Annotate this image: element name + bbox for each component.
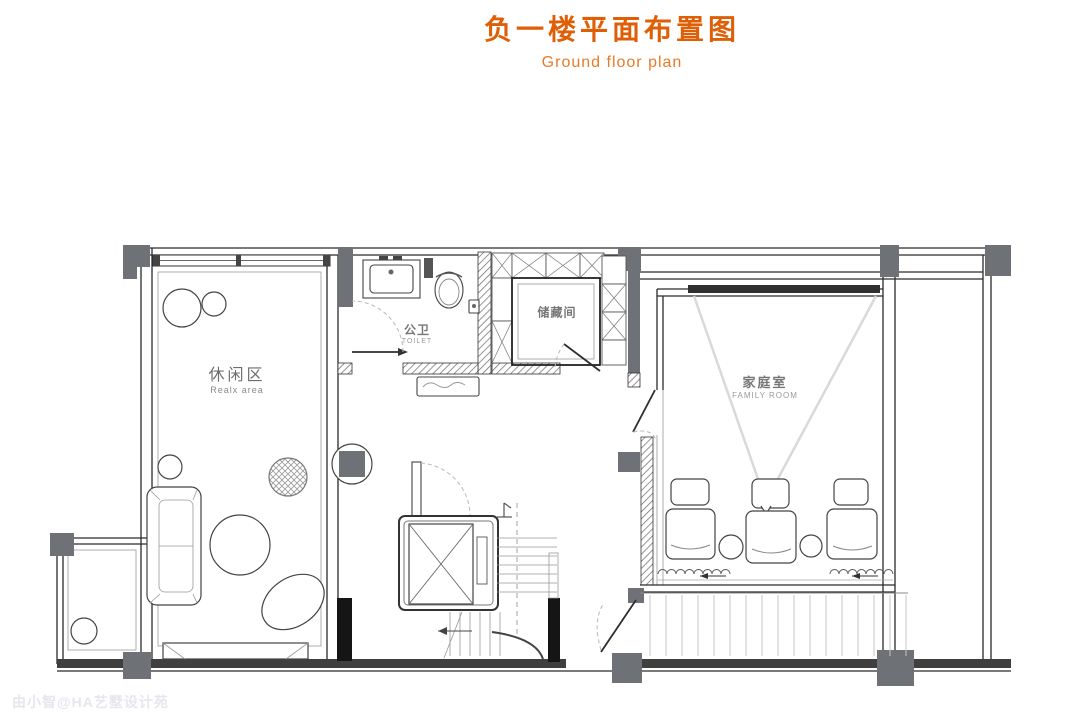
tp-holder (469, 300, 479, 313)
cabinet-column-right (602, 256, 626, 365)
bath-bench (417, 377, 479, 396)
side-table (719, 535, 743, 559)
ottoman (671, 479, 709, 505)
storage-room-outline (512, 278, 600, 365)
projection-screen (688, 285, 880, 293)
bathroom-door (352, 301, 408, 356)
patio-pot (71, 618, 97, 644)
cabinet-column-left (492, 278, 512, 363)
round-rug (269, 458, 307, 496)
family-room-door (633, 390, 656, 440)
label-family-room: 家庭室 FAMILY ROOM (732, 372, 798, 400)
sofa (147, 487, 201, 605)
wall-stub (424, 258, 433, 278)
cabinet-row-top (492, 253, 604, 278)
exterior-door (597, 600, 636, 652)
recliner (666, 509, 715, 559)
recliner (827, 509, 877, 559)
floor-plan-page: 负一楼平面布置图 Ground floor plan (0, 0, 1080, 727)
side-table (800, 535, 822, 557)
storage-door (555, 344, 600, 371)
recliner (746, 511, 796, 563)
label-toilet: 公卫 TOILET (402, 321, 432, 345)
elevator (399, 516, 498, 610)
family-room-furniture (666, 479, 877, 563)
terrace-deck (640, 593, 908, 656)
toilet (435, 272, 463, 308)
ottoman (752, 479, 789, 508)
sink (363, 256, 420, 298)
label-storage: 储藏间 (537, 304, 576, 321)
elevator-door (412, 462, 470, 517)
floor-plan-drawing (0, 0, 1080, 727)
stair-up-marker (497, 503, 512, 517)
label-relax-area: 休闲区 Realx area (208, 361, 265, 395)
watermark: 由小智@HA艺墅设计苑 (12, 692, 169, 712)
ottoman (834, 479, 868, 505)
bench (163, 643, 308, 659)
curtain (658, 570, 893, 581)
